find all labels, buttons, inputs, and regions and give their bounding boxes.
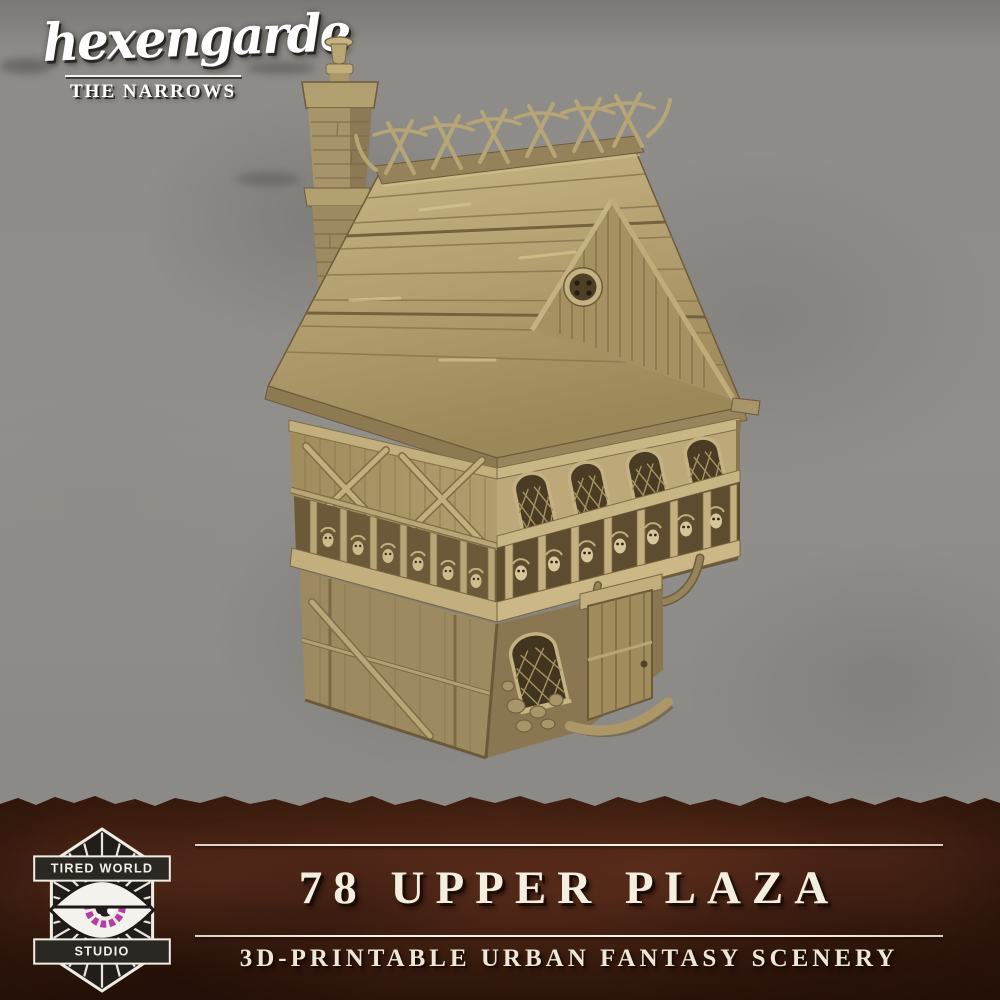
house-render [250,25,770,780]
gable-round-window [564,268,602,306]
product-title: 78 UPPER PLAZA [195,860,943,916]
poster: hexengarde THE NARROWS [0,0,1000,1000]
brand-logo: hexengarde THE NARROWS [38,14,268,103]
studio-name-top: TIRED WORLD [51,862,154,876]
brand-name: hexengarde [42,10,264,70]
studio-badge: TIRED WORLD STUDIO [26,826,178,994]
banner-rule-middle [195,935,943,937]
banner-rule-top [195,844,943,846]
studio-name-bottom: STUDIO [74,945,129,959]
brand-series: THE NARROWS [38,81,268,103]
banner-text-block: 78 UPPER PLAZA 3D-PRINTABLE URBAN FANTAS… [195,794,943,1000]
brand-divider [65,75,241,77]
product-subtitle: 3D-PRINTABLE URBAN FANTASY SCENERY [195,944,943,974]
